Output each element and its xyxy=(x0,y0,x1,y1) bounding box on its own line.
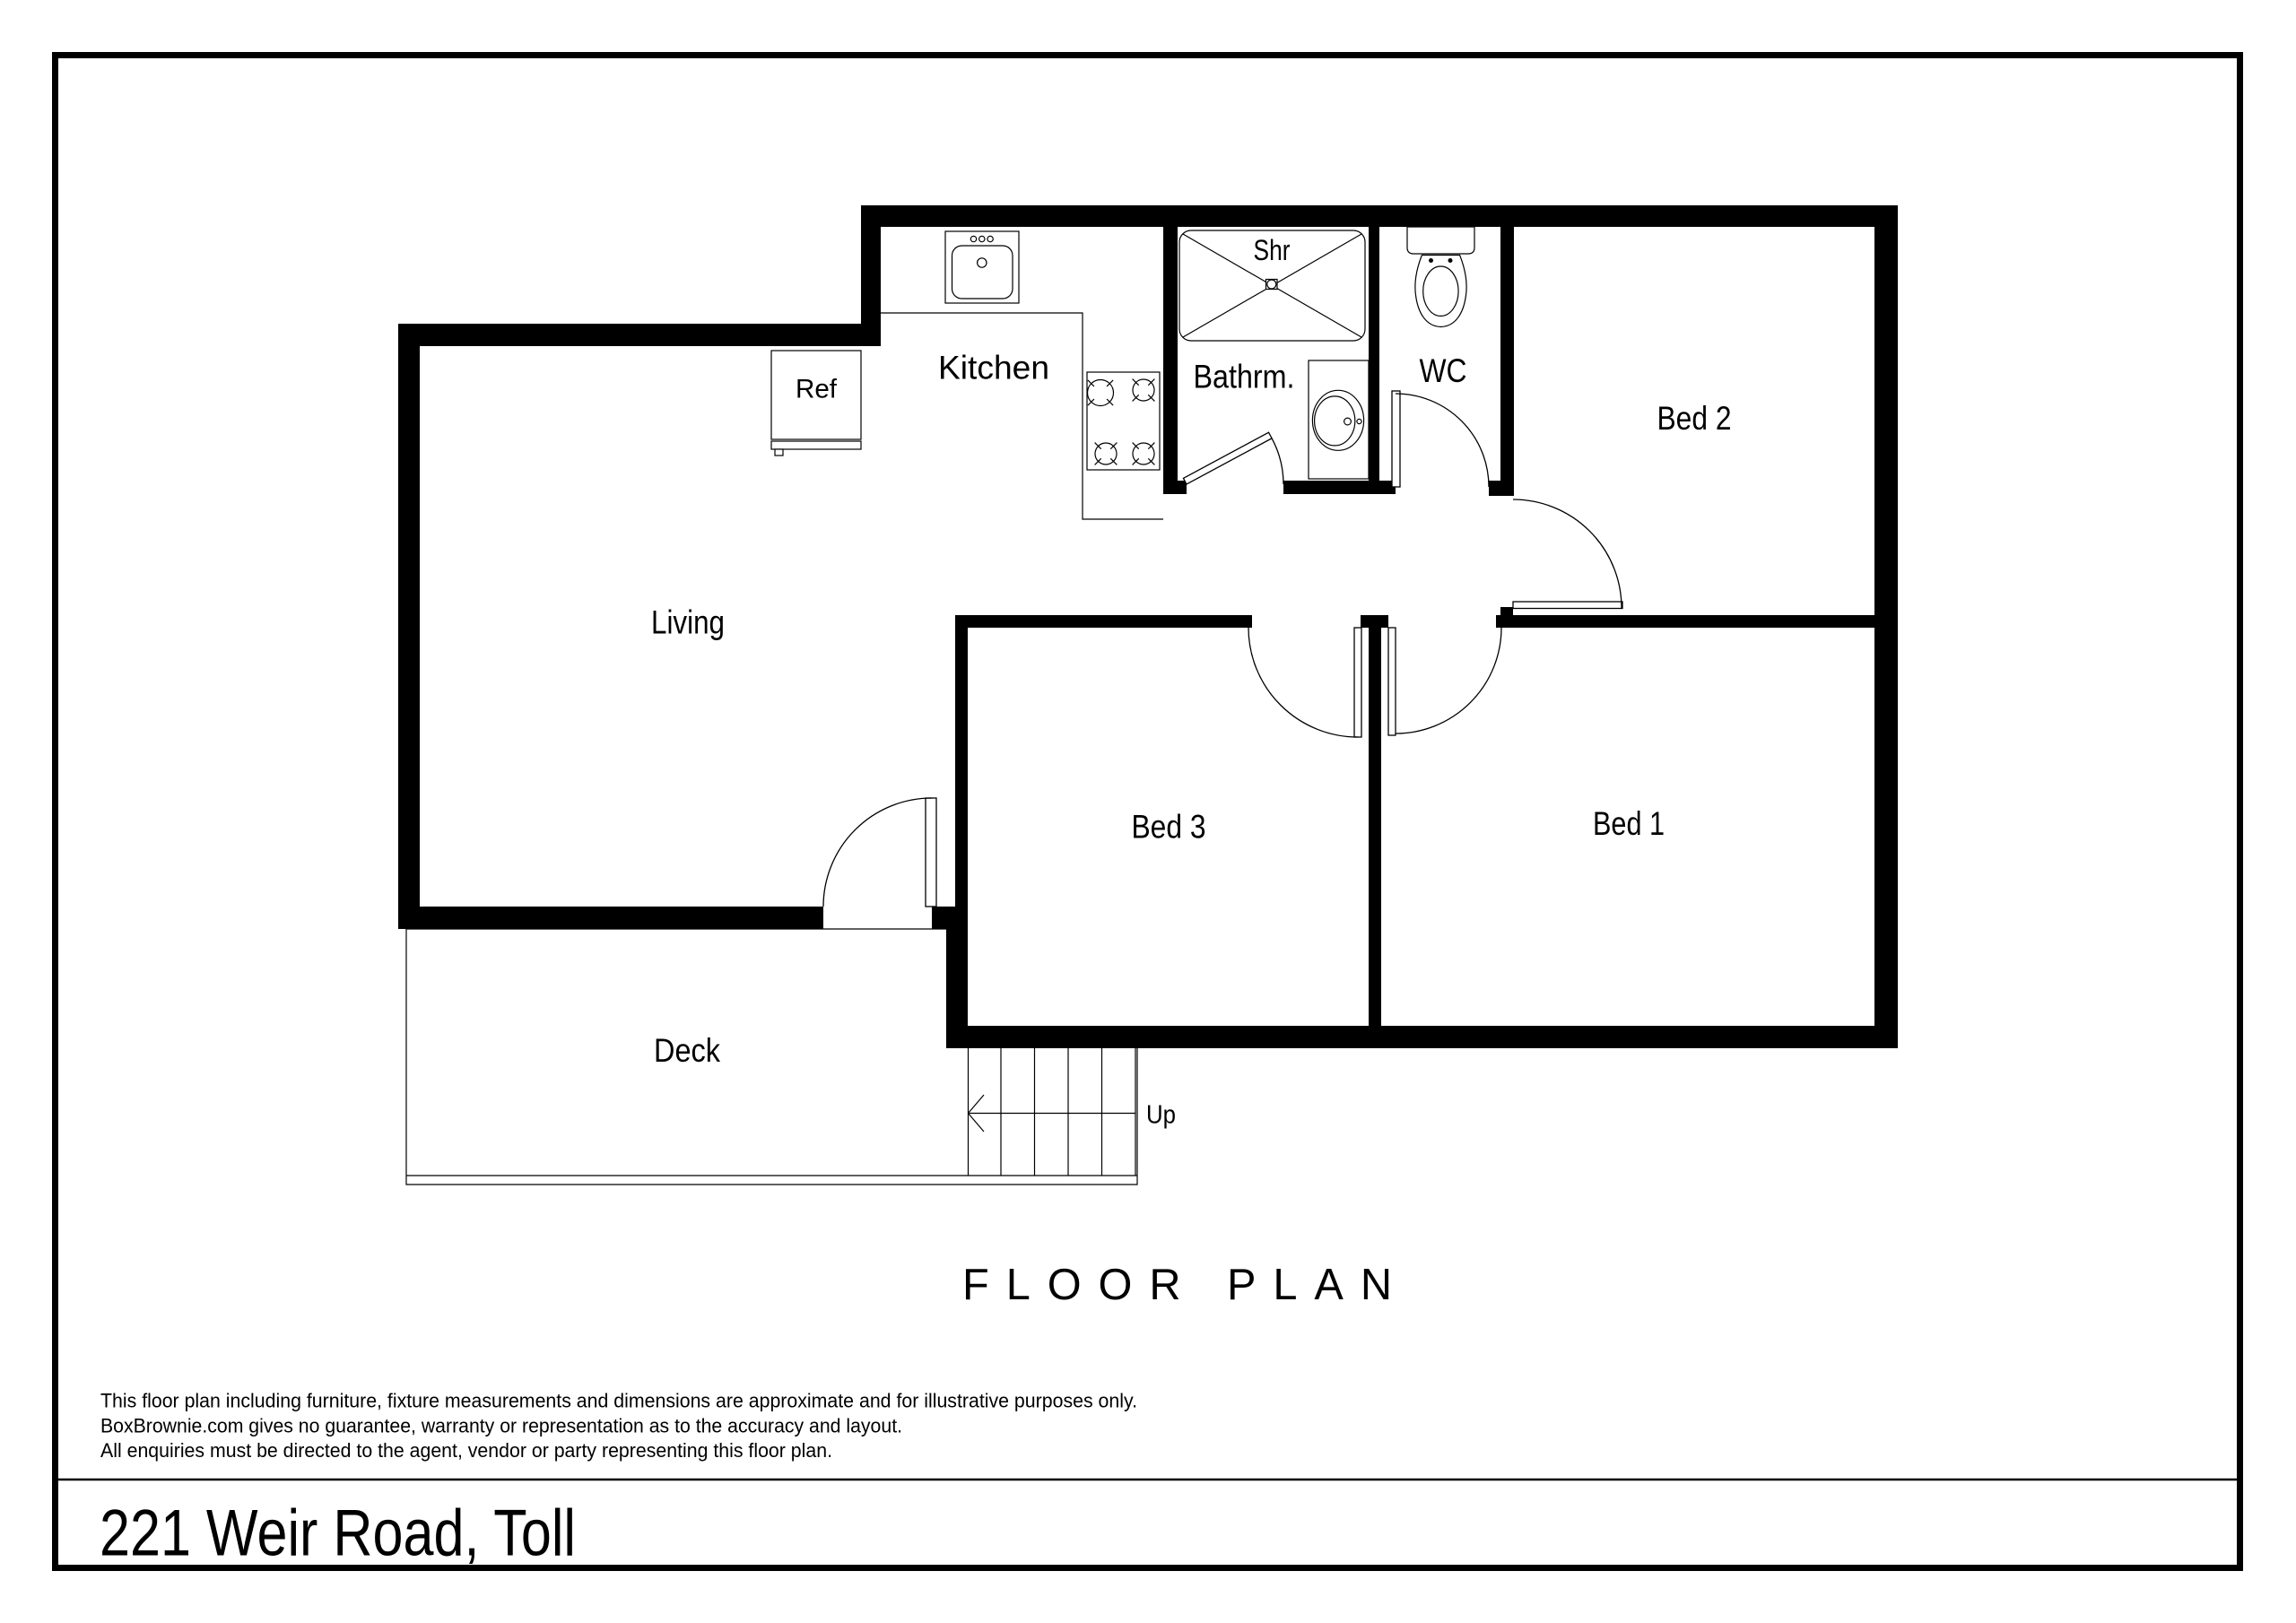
svg-text:Kitchen: Kitchen xyxy=(938,350,1049,386)
svg-text:This floor plan including furn: This floor plan including furniture, fix… xyxy=(100,1389,1137,1411)
svg-text:Up: Up xyxy=(1146,1101,1176,1130)
svg-text:Shr: Shr xyxy=(1254,234,1291,266)
svg-text:Ref: Ref xyxy=(796,375,838,404)
svg-text:WC: WC xyxy=(1420,352,1467,389)
svg-text:BoxBrownie.com gives no guaran: BoxBrownie.com gives no guarantee, warra… xyxy=(100,1414,902,1436)
svg-text:All enquiries must be directed: All enquiries must be directed to the ag… xyxy=(100,1439,832,1462)
svg-text:Bed 2: Bed 2 xyxy=(1657,400,1732,437)
svg-text:Bed 1: Bed 1 xyxy=(1593,805,1665,842)
svg-text:Bathrm.: Bathrm. xyxy=(1194,359,1295,395)
svg-text:Deck: Deck xyxy=(654,1032,720,1069)
svg-text:221 Weir Road, Toll: 221 Weir Road, Toll xyxy=(100,1497,576,1570)
svg-text:Living: Living xyxy=(651,604,725,641)
svg-text:Bed 3: Bed 3 xyxy=(1132,809,1206,846)
svg-text:FLOOR PLAN: FLOOR PLAN xyxy=(962,1261,1392,1309)
